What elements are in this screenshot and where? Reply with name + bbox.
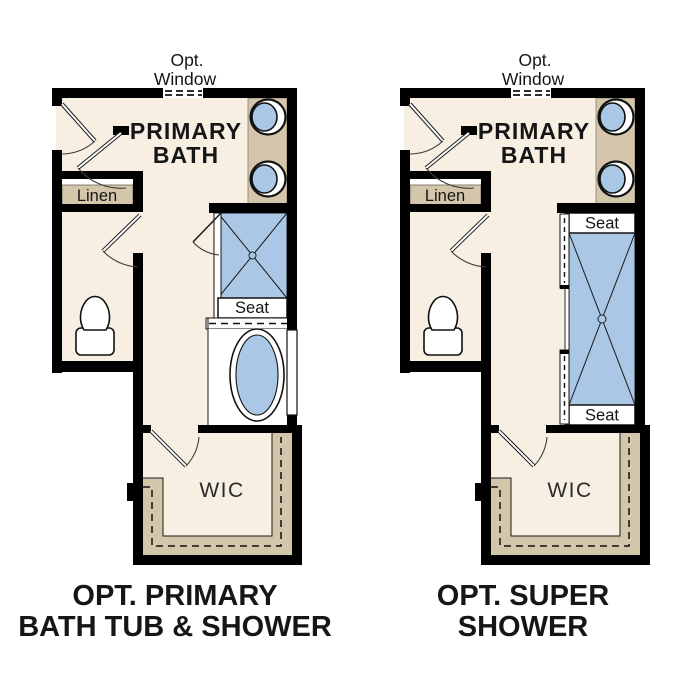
floorplan-canvas: Opt. Window PRIMARY BATH Linen Seat WIC … (0, 0, 687, 687)
tub-window (287, 330, 297, 415)
opt-window-label-line2: Window (154, 69, 217, 89)
wic-label: WIC (547, 479, 592, 502)
bathtub-area (206, 318, 290, 426)
seat-label: Seat (235, 299, 269, 317)
vanity (596, 98, 635, 205)
opt-window-label-line1: Opt. (518, 50, 551, 70)
seat-top-label: Seat (585, 215, 619, 233)
plan-title-line2: SHOWER (458, 611, 589, 643)
sink-icon (251, 162, 286, 197)
sink-icon (599, 162, 634, 197)
shower-drain (249, 252, 256, 259)
plan-title-line1: OPT. SUPER (437, 580, 609, 612)
plan-title-line2: BATH TUB & SHOWER (18, 611, 332, 643)
opt-window-label-line1: Opt. (170, 50, 203, 70)
plan-title-line1: OPT. PRIMARY (72, 580, 277, 612)
optional-window (159, 88, 207, 98)
sink-icon (599, 100, 634, 135)
optional-window (507, 88, 555, 98)
room-label-line1: PRIMARY (478, 118, 590, 144)
floorplan-super-shower: Opt. Window PRIMARY BATH Linen Seat Seat… (400, 50, 650, 643)
vanity (248, 98, 287, 205)
room-label-line1: PRIMARY (130, 118, 242, 144)
linen-label: Linen (77, 187, 117, 205)
floorplan-page: Opt. Window PRIMARY BATH Linen Seat WIC … (0, 0, 687, 687)
room-label-line2: BATH (153, 142, 219, 168)
sink-icon (251, 100, 286, 135)
super-shower (560, 213, 635, 425)
floorplan-tub-shower: Opt. Window PRIMARY BATH Linen Seat WIC … (18, 50, 332, 643)
linen-label: Linen (425, 187, 465, 205)
opt-window-label-line2: Window (502, 69, 565, 89)
seat-bottom-label: Seat (585, 407, 619, 425)
bathtub-basin (236, 335, 278, 415)
wic-label: WIC (199, 479, 244, 502)
room-label-line2: BATH (501, 142, 567, 168)
shower-drain (598, 315, 606, 323)
